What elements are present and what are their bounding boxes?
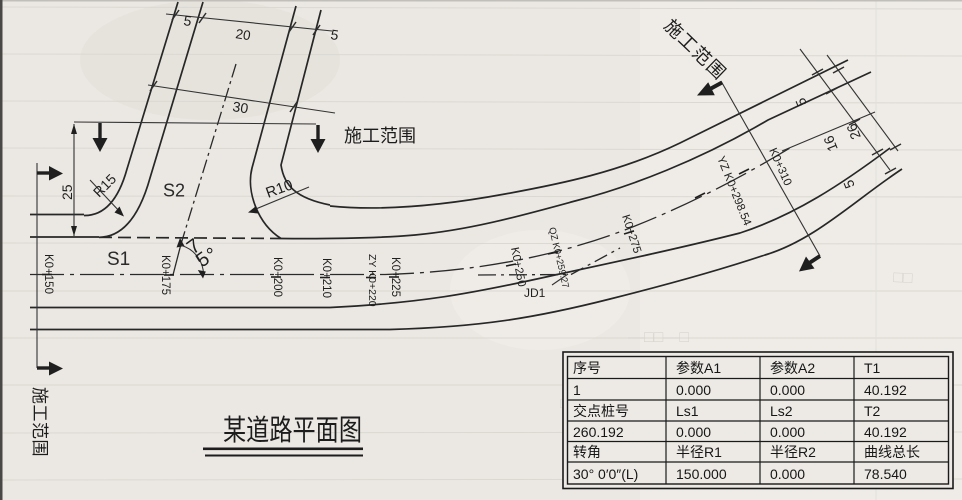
svg-text:某道路平面图: 某道路平面图	[223, 414, 362, 447]
svg-text:ZY K0+220: ZY K0+220	[366, 254, 378, 307]
svg-text:T1: T1	[864, 360, 881, 376]
svg-text:0.000: 0.000	[676, 382, 711, 398]
svg-text:曲线总长: 曲线总长	[864, 444, 920, 460]
svg-text:T2: T2	[864, 403, 881, 419]
svg-text:K0+150: K0+150	[42, 254, 54, 294]
svg-text:30: 30	[232, 98, 250, 116]
svg-text:0.000: 0.000	[770, 466, 805, 482]
svg-text:0.000: 0.000	[676, 424, 711, 440]
svg-text:20: 20	[235, 26, 252, 43]
svg-text:260.192: 260.192	[573, 424, 624, 440]
svg-text:交点桩号: 交点桩号	[573, 403, 629, 419]
svg-text:□□: □□	[893, 269, 914, 287]
svg-text:K0+210: K0+210	[320, 258, 332, 298]
svg-text:参数A2: 参数A2	[770, 360, 815, 376]
svg-text:0.000: 0.000	[770, 424, 805, 440]
svg-text:—□□—□: —□□—□	[628, 329, 689, 346]
svg-text:25: 25	[59, 184, 75, 200]
svg-text:S2: S2	[163, 181, 185, 201]
svg-text:序号: 序号	[573, 360, 601, 376]
svg-text:K0+225: K0+225	[389, 257, 401, 297]
svg-text:JD1: JD1	[524, 286, 546, 300]
svg-text:78.540: 78.540	[864, 466, 907, 482]
svg-text:参数A1: 参数A1	[676, 360, 721, 376]
svg-text:40.192: 40.192	[864, 382, 907, 398]
svg-text:0.000: 0.000	[770, 382, 805, 398]
svg-text:半径R1: 半径R1	[676, 444, 722, 460]
svg-text:半径R2: 半径R2	[770, 444, 816, 460]
svg-text:转角: 转角	[573, 444, 601, 460]
svg-text:Ls2: Ls2	[770, 403, 793, 419]
svg-text:施工范围: 施工范围	[344, 126, 416, 146]
svg-text:40.192: 40.192	[864, 424, 907, 440]
svg-text:1: 1	[573, 382, 581, 398]
svg-text:K0+200: K0+200	[271, 257, 283, 297]
svg-text:S1: S1	[107, 249, 130, 270]
svg-text:150.000: 150.000	[676, 466, 727, 482]
svg-text:30° 0′0″(L): 30° 0′0″(L)	[573, 466, 638, 482]
svg-text:施工范围: 施工范围	[30, 387, 49, 457]
svg-text:Ls1: Ls1	[676, 403, 699, 419]
svg-text:K0+175: K0+175	[159, 255, 171, 295]
